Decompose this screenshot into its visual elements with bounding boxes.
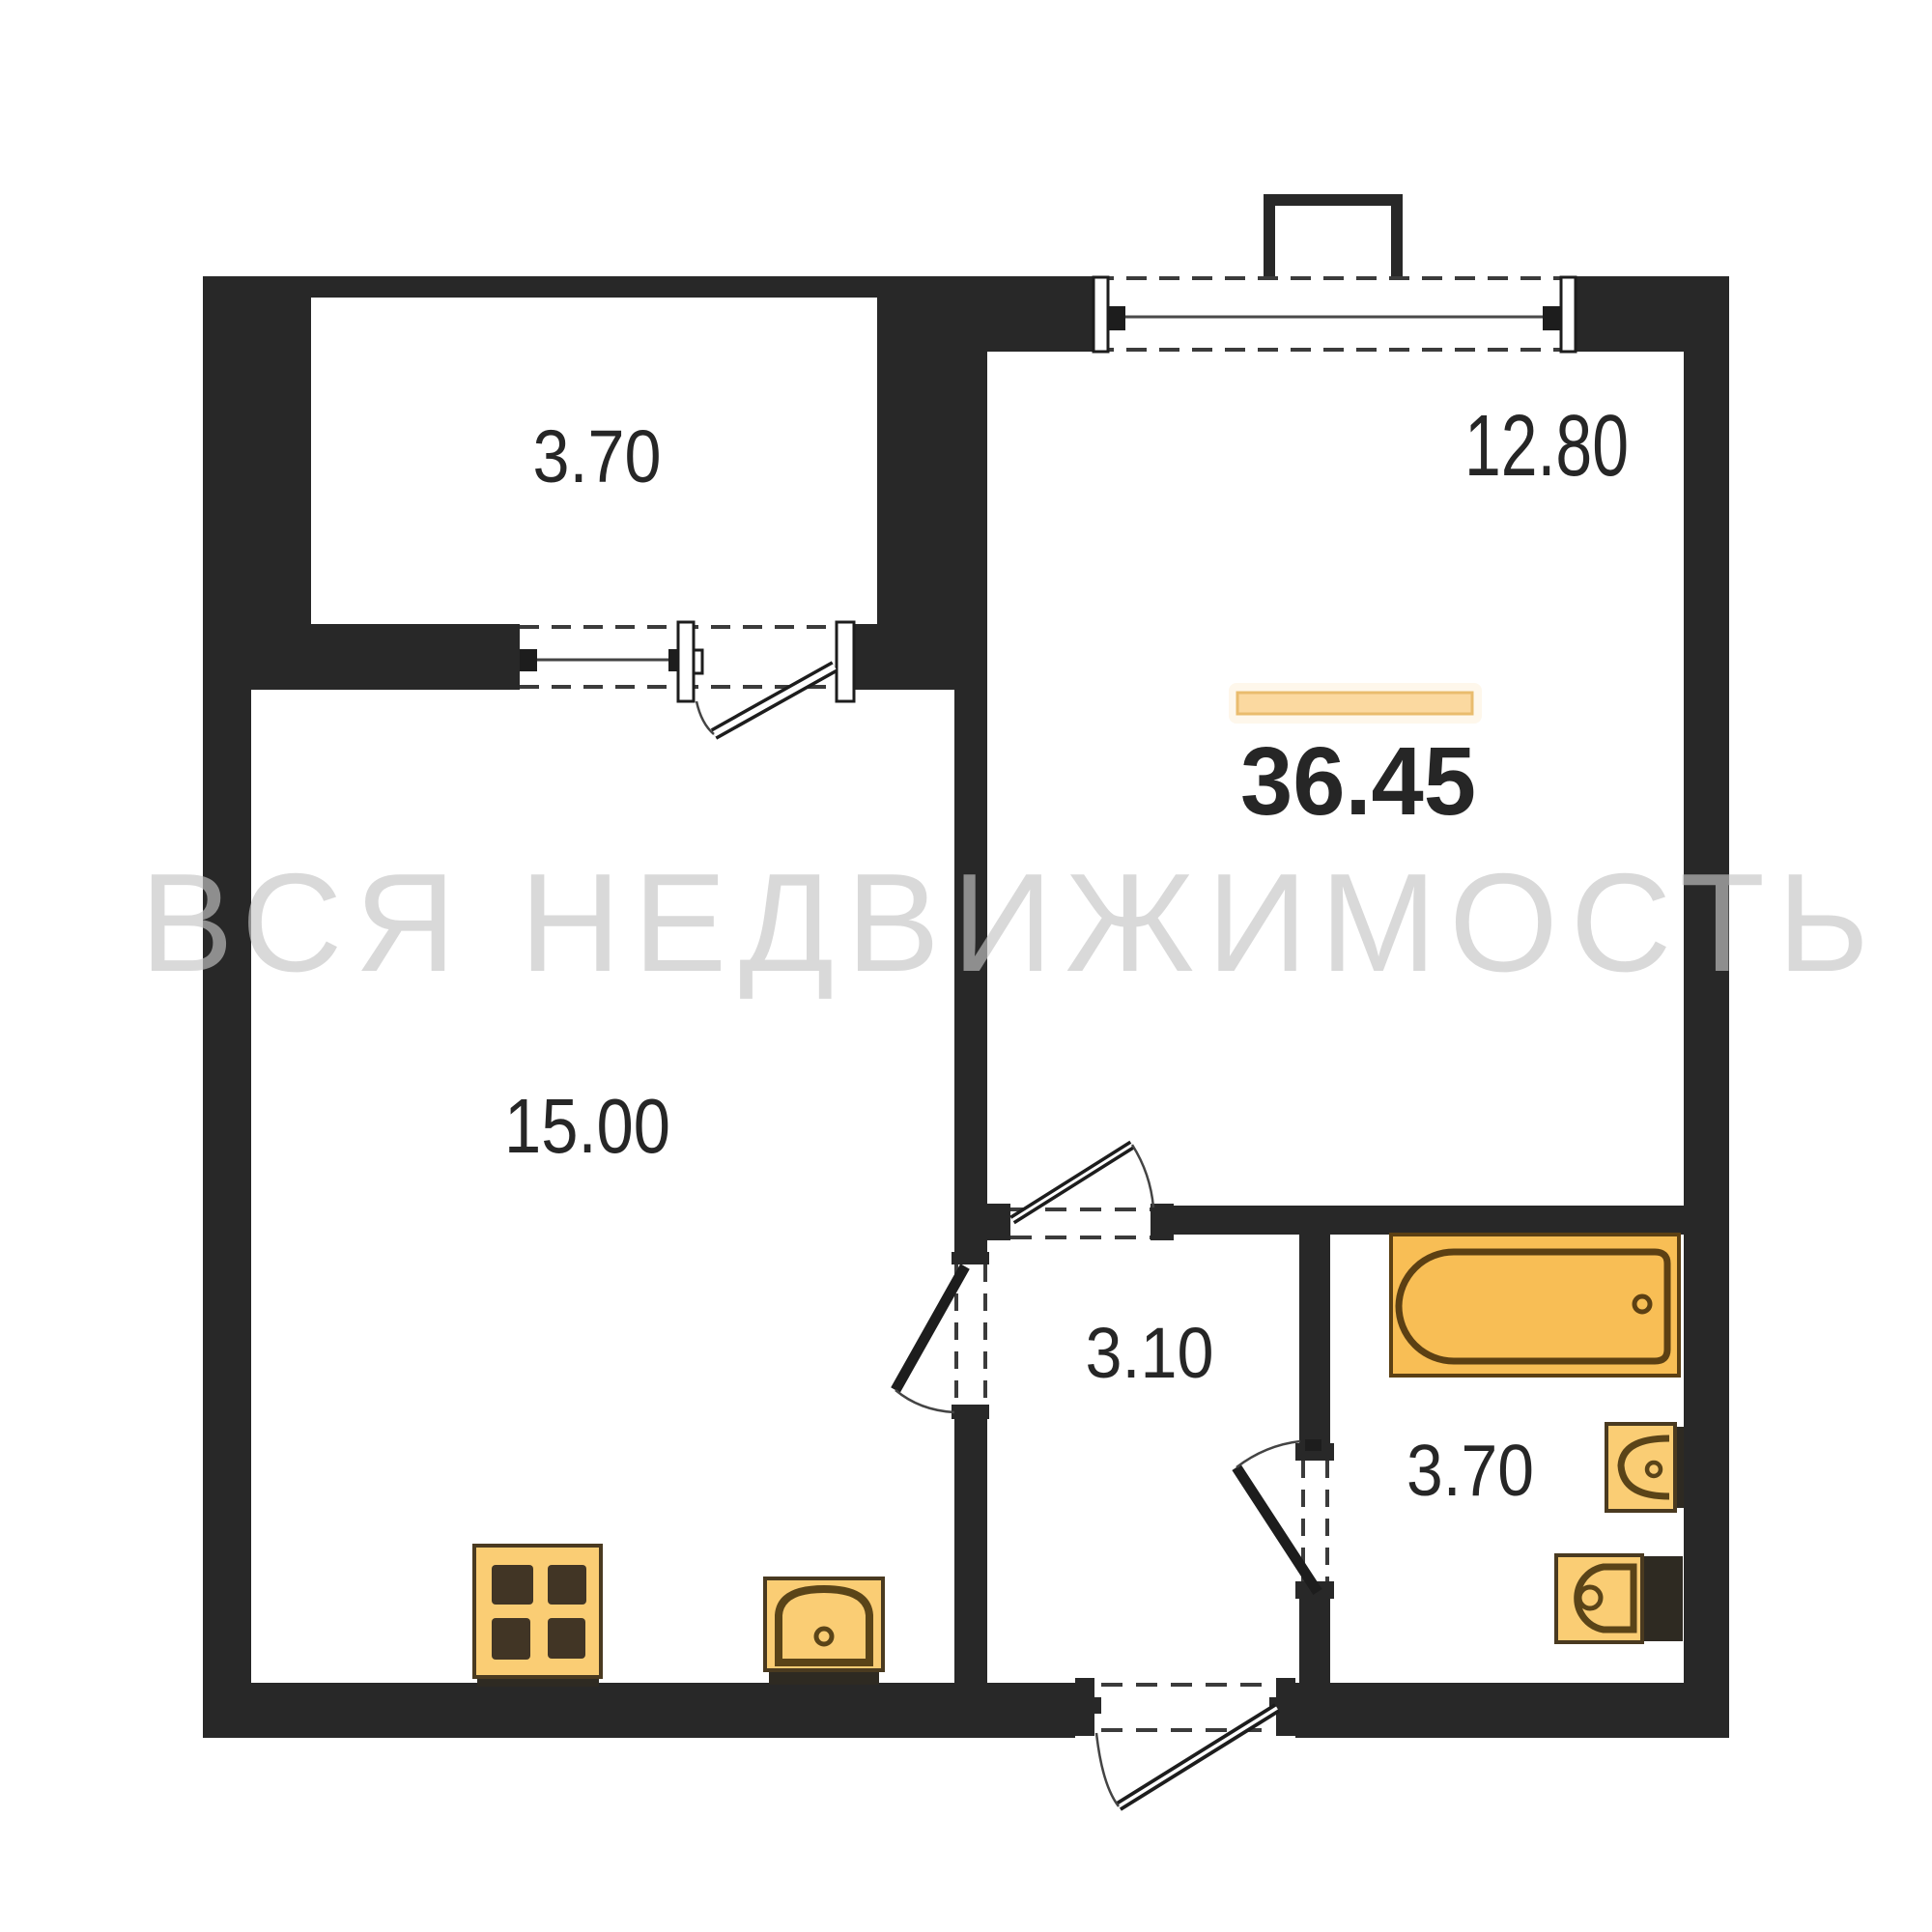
svg-text:15.00: 15.00: [504, 1083, 670, 1169]
svg-text:12.80: 12.80: [1464, 398, 1629, 495]
svg-text:36.45: 36.45: [1240, 727, 1476, 836]
svg-text:3.70: 3.70: [533, 415, 662, 498]
svg-text:ВСЯ НЕДВИЖИМОСТЬ: ВСЯ НЕДВИЖИМОСТЬ: [140, 844, 1869, 1001]
svg-text:3.70: 3.70: [1406, 1430, 1534, 1511]
svg-text:3.10: 3.10: [1086, 1313, 1214, 1393]
